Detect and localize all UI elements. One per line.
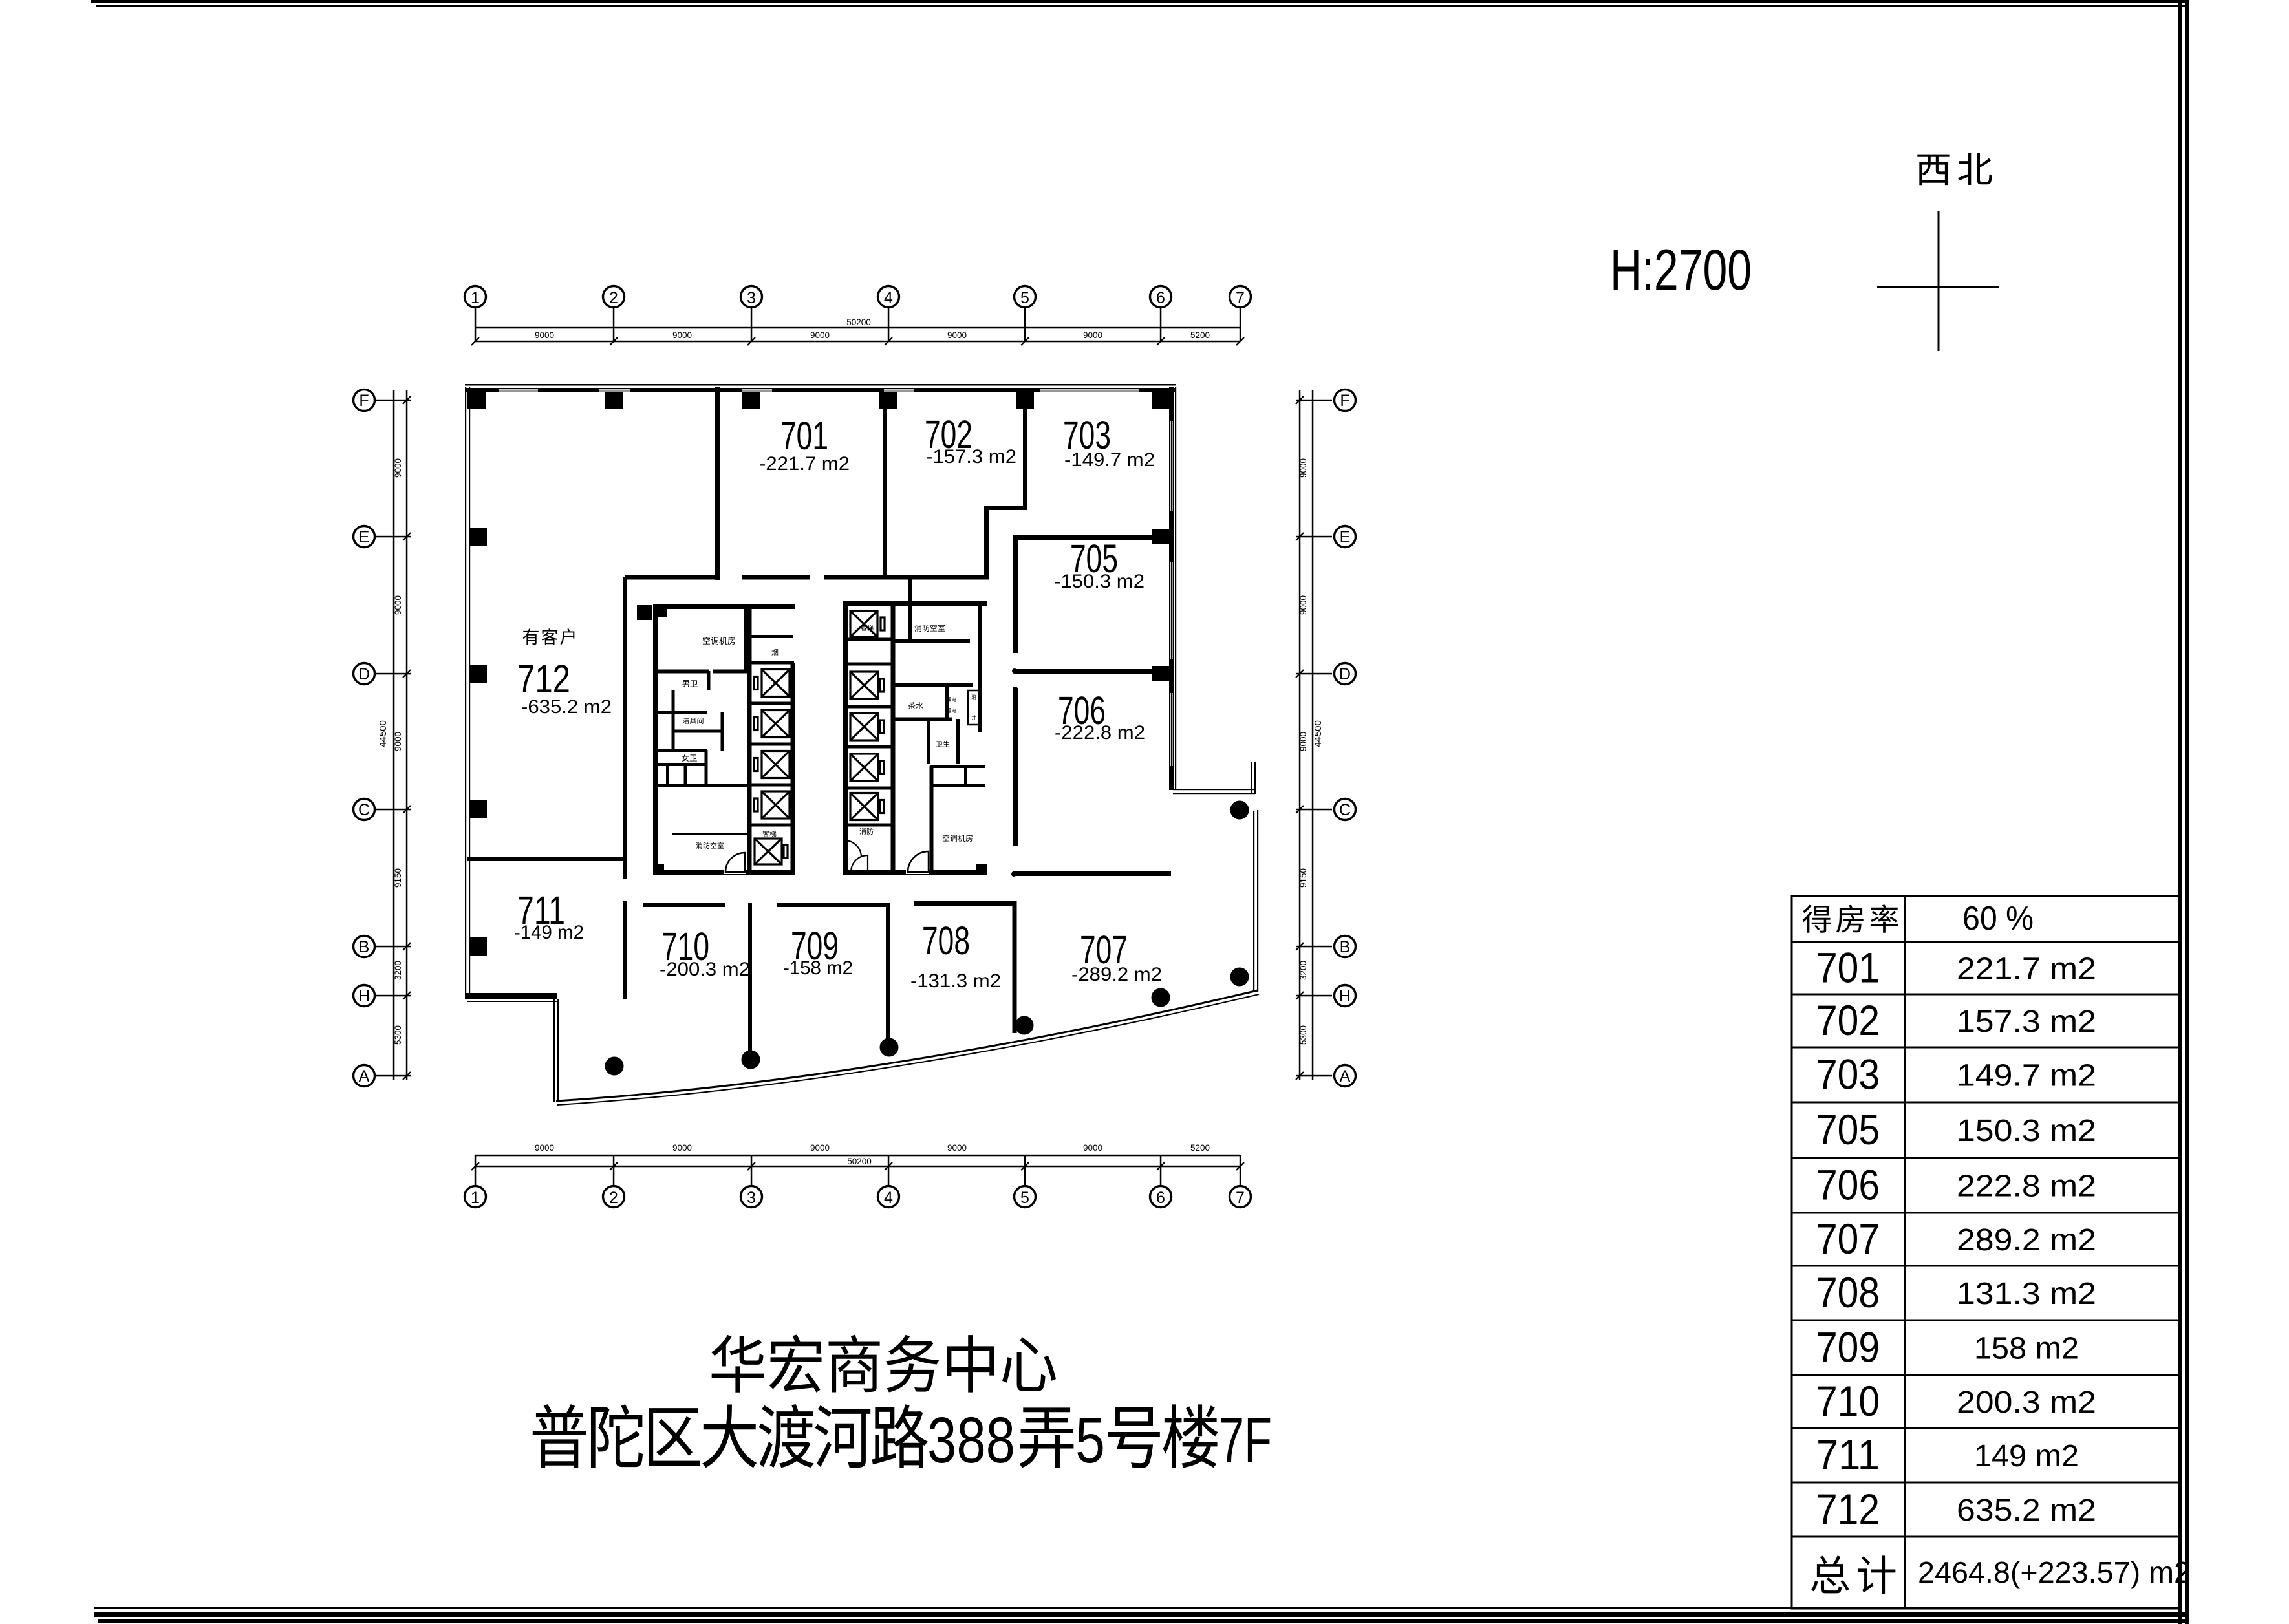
svg-text:50200: 50200: [846, 317, 871, 327]
svg-text:-289.2 m2: -289.2 m2: [1071, 964, 1162, 985]
svg-text:701: 701: [780, 414, 828, 458]
svg-text:149 m2: 149 m2: [1974, 1439, 2079, 1473]
svg-text:9000: 9000: [1298, 595, 1308, 615]
svg-text:9150: 9150: [1298, 868, 1308, 888]
svg-text:7: 7: [1236, 1189, 1245, 1207]
svg-text:712: 712: [1816, 1485, 1880, 1533]
svg-text:6: 6: [1156, 289, 1165, 307]
svg-text:2464.8(+223.57) m2: 2464.8(+223.57) m2: [1918, 1555, 2191, 1589]
svg-text:131.3 m2: 131.3 m2: [1957, 1277, 2096, 1311]
svg-text:635.2 m2: 635.2 m2: [1957, 1493, 2096, 1528]
svg-text:5300: 5300: [1298, 1025, 1308, 1045]
svg-text:2: 2: [609, 289, 618, 307]
svg-text:708: 708: [922, 919, 970, 963]
svg-text:9000: 9000: [393, 595, 403, 615]
svg-text:5300: 5300: [393, 1025, 403, 1045]
svg-text:6: 6: [1156, 1189, 1165, 1207]
svg-text:708: 708: [1816, 1268, 1880, 1316]
svg-text:-149 m2: -149 m2: [514, 922, 584, 943]
svg-text:289.2 m2: 289.2 m2: [1957, 1223, 2096, 1257]
svg-text:3: 3: [747, 1189, 756, 1207]
svg-text:H: H: [358, 987, 370, 1005]
svg-text:-221.7 m2: -221.7 m2: [759, 453, 850, 475]
svg-text:157.3 m2: 157.3 m2: [1957, 1005, 2096, 1039]
svg-text:-131.3 m2: -131.3 m2: [910, 970, 1001, 992]
svg-text:9000: 9000: [1083, 330, 1102, 340]
svg-text:5: 5: [1020, 1189, 1029, 1207]
svg-text:D: D: [1339, 665, 1351, 683]
svg-text:7: 7: [1236, 289, 1245, 307]
svg-text:5200: 5200: [1190, 330, 1210, 340]
svg-text:-222.8 m2: -222.8 m2: [1055, 722, 1145, 743]
svg-text:5: 5: [1020, 289, 1029, 307]
svg-text:E: E: [1340, 528, 1351, 546]
svg-text:1: 1: [471, 289, 480, 307]
svg-text:-157.3 m2: -157.3 m2: [926, 446, 1016, 467]
svg-text:222.8 m2: 222.8 m2: [1957, 1170, 2096, 1204]
svg-text:3200: 3200: [1298, 961, 1308, 980]
svg-text:-635.2 m2: -635.2 m2: [521, 696, 612, 718]
svg-text:706: 706: [1816, 1161, 1880, 1209]
svg-text:H: H: [1339, 987, 1351, 1005]
svg-text:221.7 m2: 221.7 m2: [1957, 952, 2096, 987]
svg-text:9000: 9000: [1298, 732, 1308, 751]
svg-text:705: 705: [1816, 1106, 1880, 1153]
svg-text:158 m2: 158 m2: [1974, 1332, 2079, 1366]
svg-text:9150: 9150: [393, 868, 403, 888]
svg-text:9000: 9000: [393, 458, 403, 478]
svg-text:7F: 7F: [1219, 1404, 1272, 1477]
svg-text:9000: 9000: [535, 330, 554, 340]
svg-text:5200: 5200: [1190, 1143, 1210, 1153]
svg-text:9000: 9000: [672, 330, 692, 340]
svg-text:44500: 44500: [1313, 720, 1324, 747]
svg-text:150.3 m2: 150.3 m2: [1957, 1114, 2096, 1148]
svg-text:D: D: [358, 665, 370, 683]
svg-text:9000: 9000: [947, 330, 967, 340]
svg-text:703: 703: [1816, 1051, 1880, 1098]
svg-text:9000: 9000: [810, 330, 830, 340]
svg-text:44500: 44500: [378, 720, 389, 747]
svg-text:-200.3 m2: -200.3 m2: [660, 959, 750, 980]
svg-text:388: 388: [927, 1404, 1015, 1477]
svg-text:3: 3: [747, 289, 756, 307]
svg-text:9000: 9000: [1298, 458, 1308, 478]
svg-text:200.3 m2: 200.3 m2: [1957, 1385, 2096, 1420]
svg-text:5: 5: [1075, 1404, 1105, 1477]
svg-text:2: 2: [609, 1189, 618, 1207]
svg-text:709: 709: [1816, 1323, 1880, 1371]
svg-text:4: 4: [884, 289, 893, 307]
svg-text:4: 4: [884, 1189, 893, 1207]
svg-text:E: E: [359, 528, 370, 546]
svg-text:710: 710: [1816, 1377, 1880, 1425]
svg-text:-158 m2: -158 m2: [783, 957, 853, 979]
svg-text:C: C: [1339, 801, 1351, 819]
svg-text:149.7 m2: 149.7 m2: [1957, 1059, 2096, 1093]
svg-text:A: A: [1340, 1067, 1351, 1085]
svg-text:H:2700: H:2700: [1610, 237, 1752, 302]
svg-text:-149.7 m2: -149.7 m2: [1064, 449, 1155, 471]
svg-text:711: 711: [1816, 1431, 1880, 1479]
svg-text:712: 712: [517, 657, 570, 701]
svg-text:50200: 50200: [847, 1157, 872, 1166]
svg-text:701: 701: [1816, 944, 1880, 992]
svg-text:9000: 9000: [810, 1143, 830, 1153]
svg-text:1: 1: [471, 1189, 480, 1207]
svg-text:707: 707: [1816, 1215, 1880, 1263]
svg-text:9000: 9000: [947, 1143, 967, 1153]
svg-text:C: C: [358, 801, 370, 819]
svg-text:B: B: [1340, 938, 1351, 956]
svg-text:702: 702: [1816, 996, 1880, 1044]
svg-text:9000: 9000: [393, 732, 403, 751]
svg-text:F: F: [359, 392, 369, 410]
svg-text:60 %: 60 %: [1962, 900, 2034, 937]
svg-text:A: A: [359, 1067, 370, 1085]
svg-text:3200: 3200: [393, 961, 403, 980]
svg-text:9000: 9000: [672, 1143, 692, 1153]
svg-text:9000: 9000: [535, 1143, 554, 1153]
svg-text:F: F: [1340, 392, 1349, 410]
svg-text:B: B: [359, 938, 370, 956]
svg-text:-150.3 m2: -150.3 m2: [1054, 571, 1144, 592]
svg-text:9000: 9000: [1083, 1143, 1102, 1153]
